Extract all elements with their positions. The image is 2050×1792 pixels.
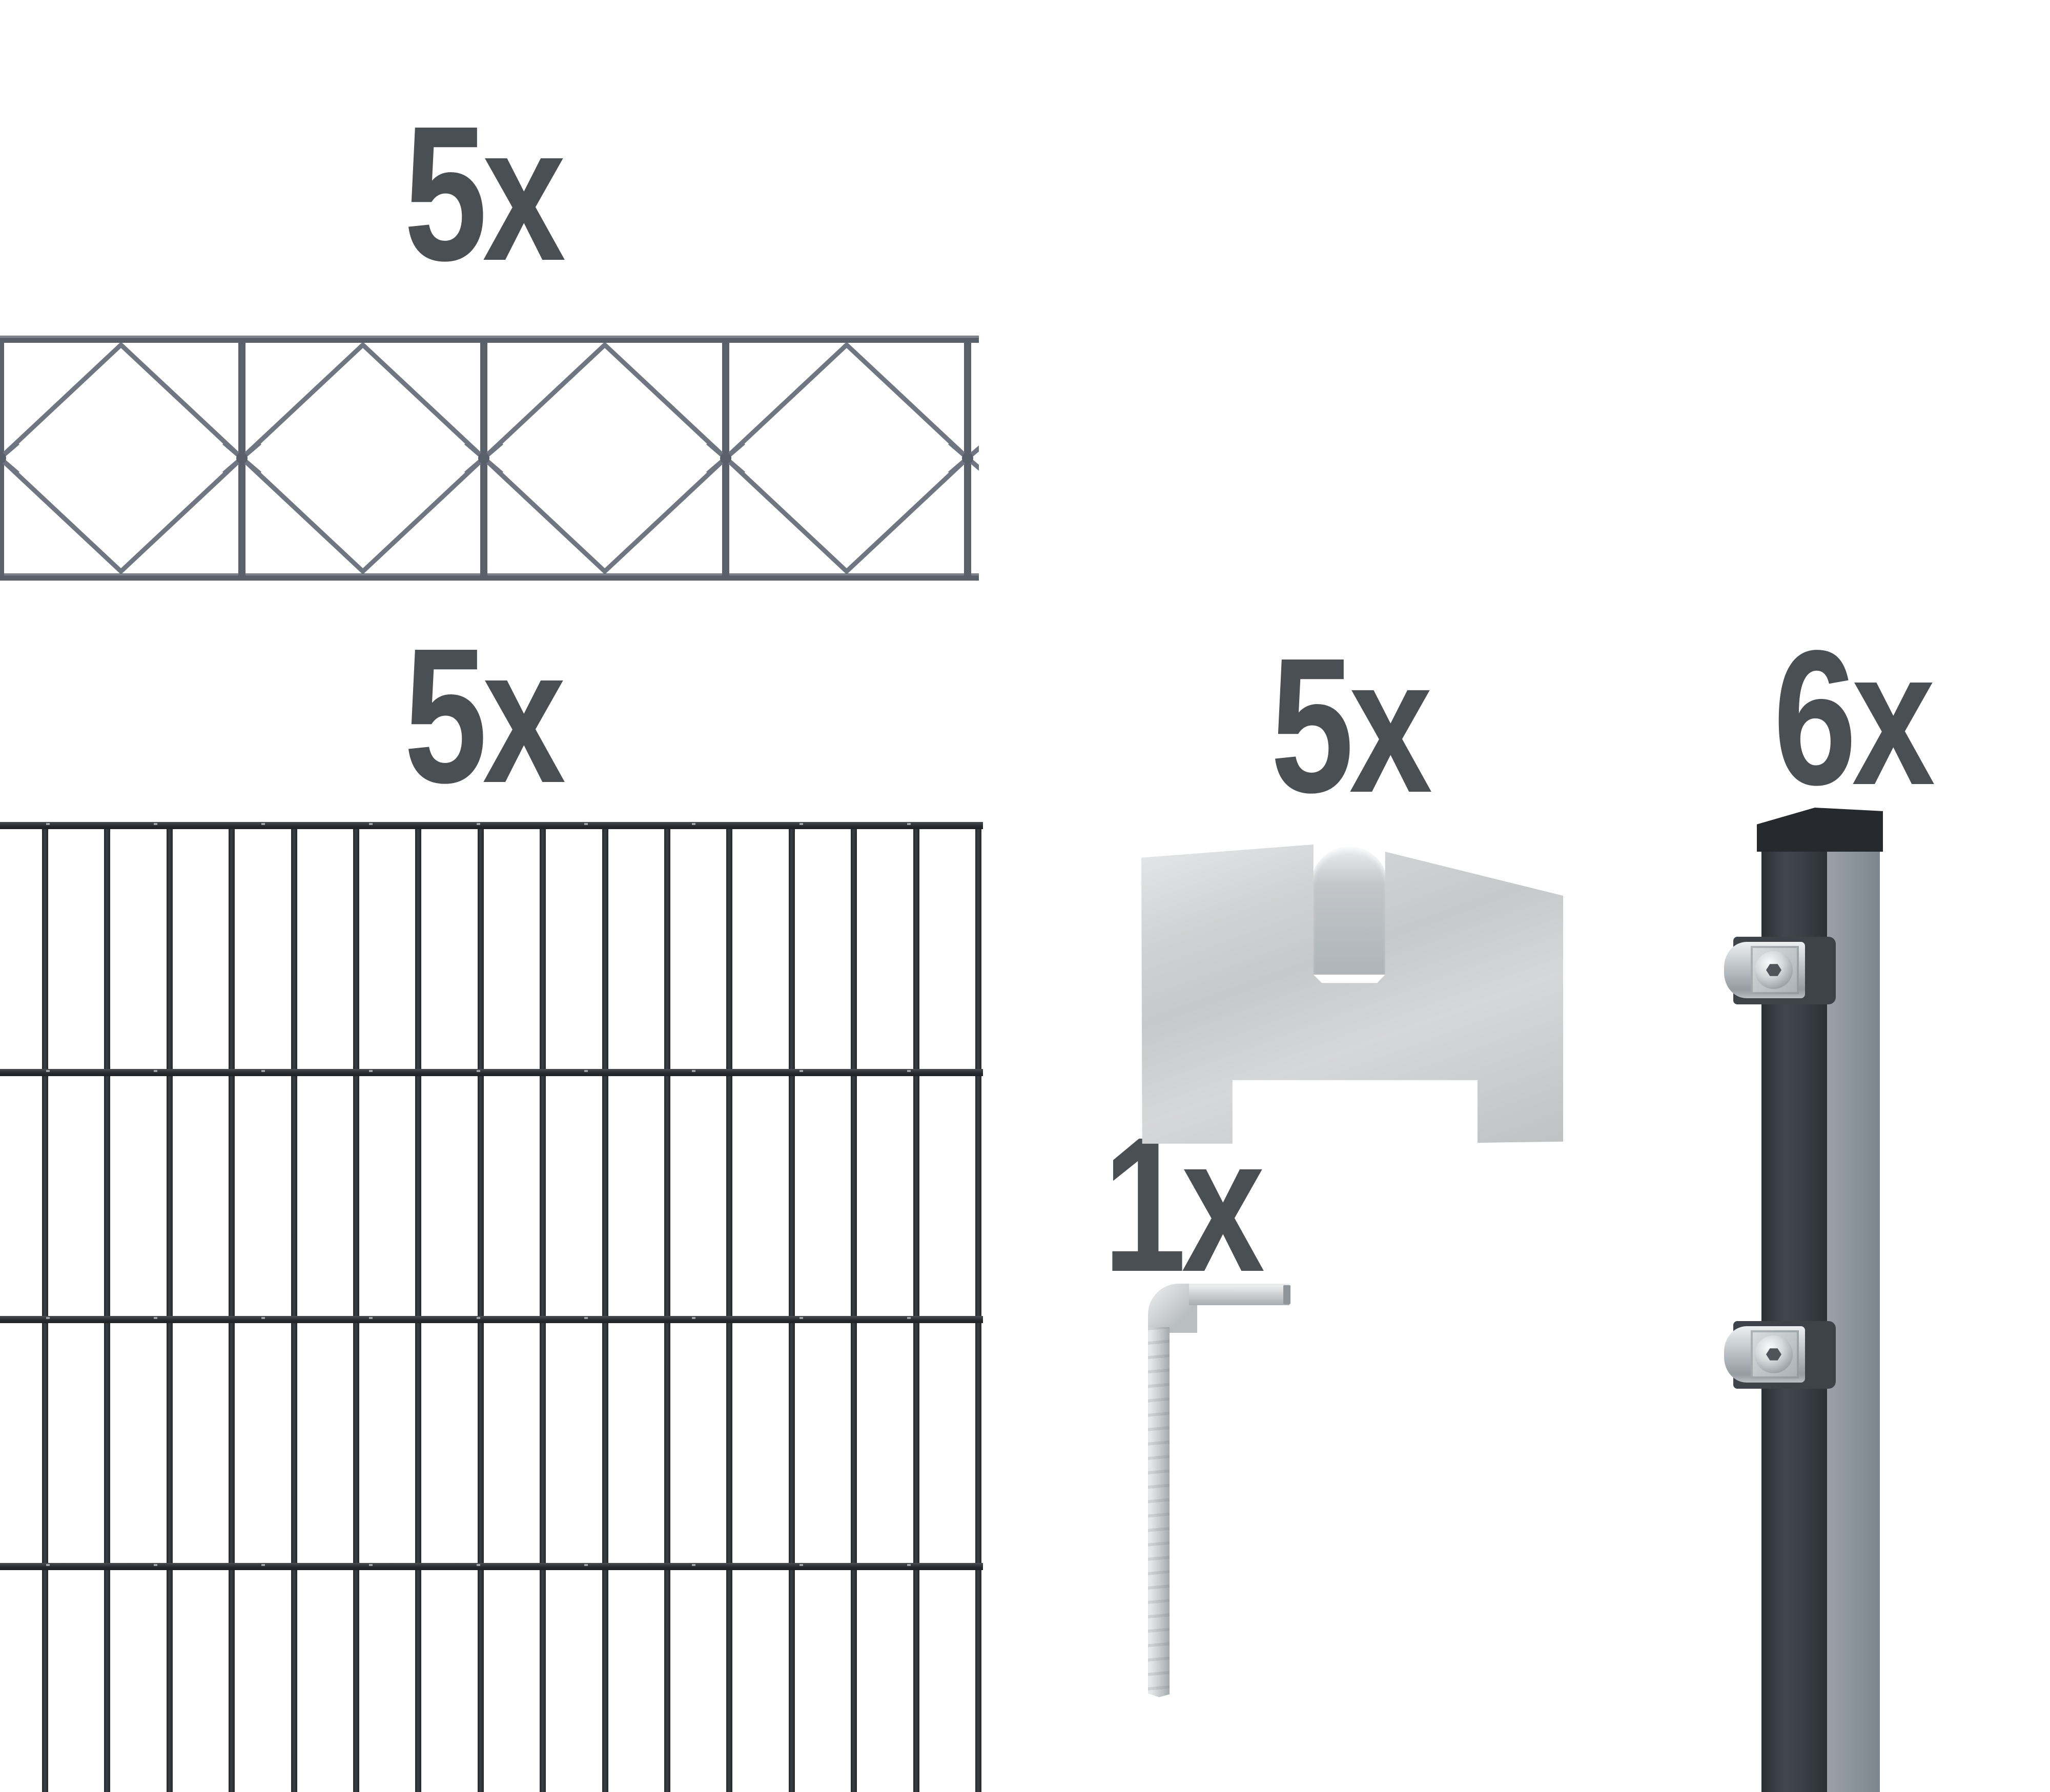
clamp-hex-screw [1755, 951, 1793, 989]
panel-vertical-bar [104, 826, 110, 1792]
topper-weld-dots [0, 452, 973, 464]
panel-vertical-bar [913, 826, 919, 1792]
hex-key-short-arm [1189, 1284, 1289, 1305]
panel-vertical-bar [851, 826, 857, 1792]
hex-key-long-arm [1148, 1327, 1170, 1697]
panel-vertical-bar [291, 826, 297, 1792]
clamp-hex-screw [1755, 1335, 1793, 1373]
panel-vertical-bar [789, 826, 795, 1792]
panel-vertical-bar [167, 826, 173, 1792]
topper-bottom-rail-highlight [0, 574, 979, 575]
panel-vertical-bar [540, 826, 546, 1792]
quantity-label-topper: 5x [404, 98, 561, 290]
panel-horizontal-rod [0, 1563, 983, 1570]
fence-kit-product-image: 5x 5x 5x 1x 6x [0, 0, 2050, 1792]
hex-key-tip-face [1283, 1285, 1290, 1304]
panel-vertical-bar [229, 826, 235, 1792]
panel-vertical-bar [478, 826, 484, 1792]
panel-vertical-bar [602, 826, 608, 1792]
panel-horizontal-rod [0, 1069, 983, 1076]
fence-topper-strip [0, 336, 979, 581]
panel-horizontal-rod [0, 822, 983, 829]
panel-vertical-bar [353, 826, 359, 1792]
post-clamp-upper [1722, 934, 1836, 1006]
quantity-label-panel: 5x [404, 620, 561, 812]
fence-mesh-panel [0, 822, 983, 1792]
post-clamp-lower [1722, 1318, 1836, 1391]
quantity-label-clip: 5x [1270, 630, 1428, 822]
panel-vertical-bar [726, 826, 732, 1792]
quantity-label-post: 6x [1773, 622, 1931, 814]
panel-vertical-bar [42, 826, 48, 1792]
panel-horizontal-rod [0, 1316, 983, 1323]
panel-vertical-bar [415, 826, 421, 1792]
panel-vertical-bar [975, 826, 981, 1792]
topper-top-rail-highlight [0, 336, 979, 338]
panel-vertical-bar [664, 826, 670, 1792]
cover-clip-notch-tab [1311, 847, 1388, 975]
